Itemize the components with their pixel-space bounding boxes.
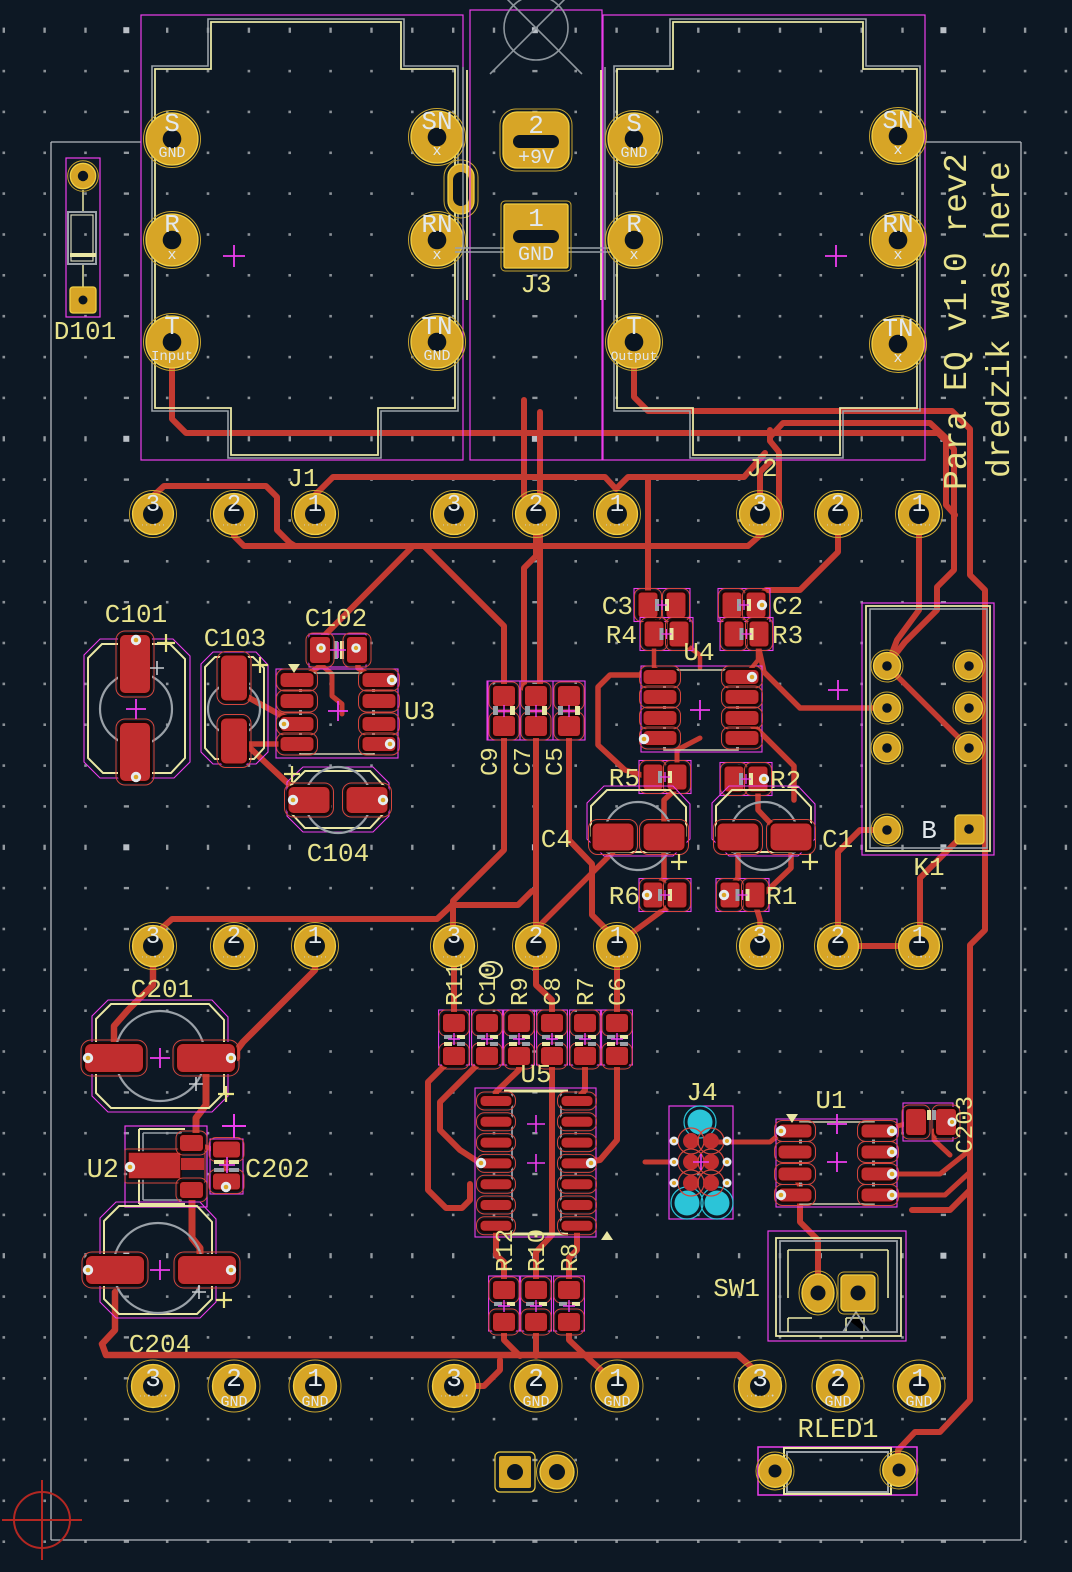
- svg-text:···•··: ···•··: [825, 522, 850, 530]
- svg-text:J4: J4: [686, 1078, 717, 1108]
- svg-text:2: 2: [831, 924, 845, 951]
- svg-text:3: 3: [446, 1364, 462, 1394]
- svg-text:C4: C4: [541, 825, 572, 855]
- svg-text:B: B: [921, 816, 937, 846]
- svg-text:···•··: ···•··: [140, 522, 165, 530]
- svg-text:1: 1: [610, 924, 624, 951]
- svg-text:C7: C7: [511, 747, 538, 776]
- svg-text:···•··: ···•··: [604, 522, 629, 530]
- svg-text:x: x: [432, 143, 441, 160]
- svg-text:C201: C201: [131, 975, 193, 1005]
- svg-text:x: x: [629, 247, 638, 264]
- svg-text:RN: RN: [882, 210, 913, 240]
- svg-text:1: 1: [911, 1364, 927, 1394]
- svg-text:3: 3: [752, 1364, 768, 1394]
- svg-text:···•··: ···•··: [140, 954, 165, 962]
- svg-text:3: 3: [146, 924, 160, 951]
- svg-text:1: 1: [308, 924, 322, 951]
- svg-text:GND: GND: [158, 145, 185, 162]
- svg-text:1: 1: [308, 492, 322, 519]
- svg-text:2: 2: [529, 492, 543, 519]
- svg-text:···•··: ···•··: [747, 954, 772, 962]
- svg-text:TN: TN: [882, 314, 913, 344]
- svg-text:x: x: [893, 247, 902, 264]
- svg-text:···•··: ···•··: [523, 522, 548, 530]
- svg-text:GND: GND: [522, 1394, 549, 1411]
- svg-text:R12: R12: [493, 1229, 520, 1272]
- svg-text:R11: R11: [443, 963, 470, 1006]
- svg-text:R4: R4: [606, 621, 637, 651]
- svg-text:dredzik was here: dredzik was here: [982, 161, 1019, 478]
- svg-text:1: 1: [912, 924, 926, 951]
- svg-text:U4: U4: [683, 638, 714, 668]
- svg-text:Output: Output: [611, 349, 658, 364]
- svg-text:1: 1: [307, 1364, 323, 1394]
- svg-text:SN: SN: [882, 106, 913, 136]
- svg-text:S: S: [164, 109, 180, 139]
- svg-text:C102: C102: [305, 604, 367, 634]
- svg-text:D101: D101: [54, 317, 116, 347]
- svg-text:··•···•: ··•···•: [138, 1393, 167, 1401]
- svg-text:3: 3: [146, 492, 160, 519]
- svg-text:···•··: ···•··: [302, 522, 327, 530]
- svg-text:R1: R1: [766, 882, 797, 912]
- svg-text:1: 1: [610, 492, 624, 519]
- svg-text:R3: R3: [772, 621, 803, 651]
- svg-text:Input: Input: [151, 349, 193, 365]
- svg-text:3: 3: [447, 924, 461, 951]
- svg-text:C202: C202: [245, 1156, 310, 1186]
- svg-text:RN: RN: [421, 210, 452, 240]
- svg-text:···•··: ···•··: [604, 954, 629, 962]
- svg-text:K1: K1: [913, 853, 944, 883]
- svg-text:···•··: ···•··: [441, 954, 466, 962]
- svg-text:2: 2: [831, 492, 845, 519]
- svg-text:1: 1: [528, 204, 544, 234]
- svg-text:SN: SN: [421, 107, 452, 137]
- svg-text:J3: J3: [520, 270, 551, 300]
- svg-text:C103: C103: [204, 624, 266, 654]
- svg-text:C8: C8: [541, 977, 568, 1006]
- svg-text:R8: R8: [558, 1243, 585, 1272]
- svg-text:2: 2: [226, 1364, 242, 1394]
- svg-text:2: 2: [528, 1364, 544, 1394]
- svg-text:GND: GND: [423, 348, 450, 365]
- svg-text:U3: U3: [404, 697, 435, 727]
- svg-text:TN: TN: [421, 312, 452, 342]
- svg-text:C5: C5: [543, 747, 570, 776]
- svg-text:C1: C1: [822, 825, 853, 855]
- svg-text:Para EQ v1.0 rev2: Para EQ v1.0 rev2: [939, 153, 976, 490]
- svg-text:C204: C204: [129, 1330, 191, 1360]
- svg-text:3: 3: [145, 1364, 161, 1394]
- svg-text:2: 2: [227, 492, 241, 519]
- svg-text:···•··: ···•··: [441, 522, 466, 530]
- svg-text:R9: R9: [508, 977, 535, 1006]
- svg-text:2: 2: [528, 111, 544, 141]
- svg-text:C2: C2: [772, 592, 803, 622]
- svg-text:C101: C101: [105, 600, 167, 630]
- svg-text:S: S: [626, 109, 642, 139]
- svg-text:GND: GND: [301, 1394, 328, 1411]
- svg-text:U5: U5: [520, 1060, 551, 1090]
- svg-text:3: 3: [753, 924, 767, 951]
- svg-text:1: 1: [609, 1364, 625, 1394]
- svg-text:···•··: ···•··: [906, 522, 931, 530]
- svg-text:···•··: ···•··: [825, 954, 850, 962]
- svg-text:R7: R7: [574, 977, 601, 1006]
- svg-text:3: 3: [447, 492, 461, 519]
- svg-text:1: 1: [912, 492, 926, 519]
- svg-text:R: R: [626, 210, 642, 240]
- svg-text:J1: J1: [287, 464, 318, 494]
- svg-text:C104: C104: [307, 839, 369, 869]
- svg-text:··•···•: ··•···•: [745, 1393, 774, 1401]
- svg-text:···•··: ···•··: [906, 954, 931, 962]
- svg-text:C3: C3: [602, 592, 633, 622]
- svg-text:x: x: [167, 247, 176, 264]
- svg-text:T: T: [164, 312, 180, 342]
- svg-text:···•··: ···•··: [523, 954, 548, 962]
- svg-text:···•··: ···•··: [221, 954, 246, 962]
- svg-text:···•··: ···•··: [747, 522, 772, 530]
- svg-text:C6: C6: [606, 977, 633, 1006]
- svg-text:R10: R10: [525, 1229, 552, 1272]
- svg-text:2: 2: [227, 924, 241, 951]
- svg-text:C9: C9: [478, 747, 505, 776]
- svg-text:x: x: [893, 142, 902, 159]
- svg-text:GND: GND: [518, 244, 554, 267]
- svg-text:x: x: [432, 247, 441, 264]
- svg-text:x: x: [893, 350, 902, 367]
- svg-text:GND: GND: [824, 1394, 851, 1411]
- svg-text:3: 3: [753, 492, 767, 519]
- svg-text:C203: C203: [953, 1096, 980, 1154]
- svg-text:T: T: [626, 312, 642, 342]
- svg-text:···•··: ···•··: [302, 954, 327, 962]
- svg-text:2: 2: [529, 924, 543, 951]
- svg-text:+9V: +9V: [518, 147, 554, 170]
- svg-text:SW1: SW1: [713, 1274, 760, 1304]
- svg-text:GND: GND: [905, 1394, 932, 1411]
- svg-text:GND: GND: [220, 1394, 247, 1411]
- svg-text:···•··: ···•··: [221, 522, 246, 530]
- svg-text:2: 2: [830, 1364, 846, 1394]
- svg-text:GND: GND: [603, 1394, 630, 1411]
- svg-text:J2: J2: [746, 454, 777, 484]
- svg-text:U2: U2: [87, 1156, 119, 1186]
- svg-text:GND: GND: [620, 145, 647, 162]
- svg-text:··•···•: ··•···•: [439, 1393, 468, 1401]
- svg-text:RLED1: RLED1: [797, 1416, 878, 1446]
- svg-text:U1: U1: [815, 1086, 846, 1116]
- svg-text:R: R: [164, 210, 180, 240]
- svg-text:R6: R6: [609, 882, 640, 912]
